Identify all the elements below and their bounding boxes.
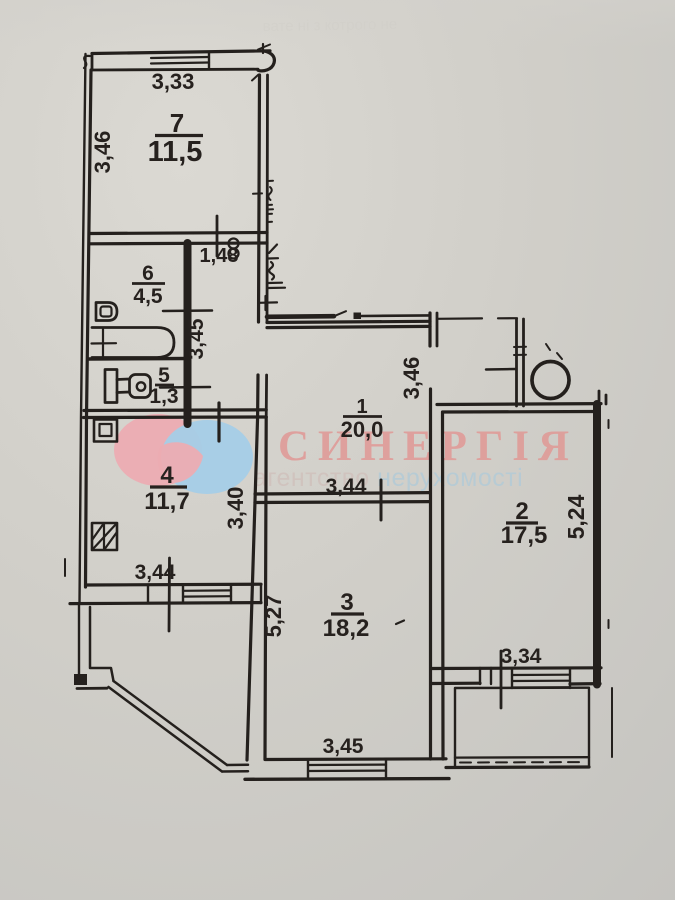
svg-text:3,44: 3,44	[326, 475, 367, 498]
svg-text:5,27: 5,27	[261, 595, 286, 638]
svg-text:вате ні з котрого не: вате ні з котрого не	[263, 16, 398, 35]
svg-text:3: 3	[340, 589, 353, 616]
svg-text:3,40: 3,40	[223, 487, 248, 530]
svg-text:3,33: 3,33	[152, 69, 195, 94]
svg-text:17,5: 17,5	[501, 522, 548, 549]
svg-text:3,45: 3,45	[185, 318, 208, 359]
svg-text:11,7: 11,7	[144, 488, 189, 515]
svg-text:3,45: 3,45	[323, 735, 364, 758]
svg-text:агентство нерухомості: агентство нерухомості	[253, 464, 523, 492]
svg-text:18,2: 18,2	[323, 615, 370, 642]
svg-text:3,46: 3,46	[90, 131, 115, 174]
svg-text:СИНЕРГІЯ: СИНЕРГІЯ	[278, 423, 578, 470]
svg-text:11,5: 11,5	[148, 136, 203, 168]
svg-text:1: 1	[356, 396, 367, 418]
svg-text:6: 6	[142, 262, 154, 285]
svg-text:5,24: 5,24	[563, 494, 589, 539]
svg-text:4,5: 4,5	[133, 285, 163, 308]
svg-text:2: 2	[515, 498, 528, 525]
svg-text:3,44: 3,44	[135, 561, 176, 584]
svg-text:3,34: 3,34	[501, 645, 542, 668]
svg-text:5: 5	[158, 364, 170, 387]
svg-text:3,46: 3,46	[399, 357, 424, 400]
svg-text:1,3: 1,3	[149, 385, 178, 408]
svg-text:4: 4	[160, 462, 174, 489]
svg-text:7: 7	[170, 108, 184, 138]
svg-text:20,0: 20,0	[341, 417, 384, 442]
svg-text:1,48: 1,48	[200, 245, 239, 267]
